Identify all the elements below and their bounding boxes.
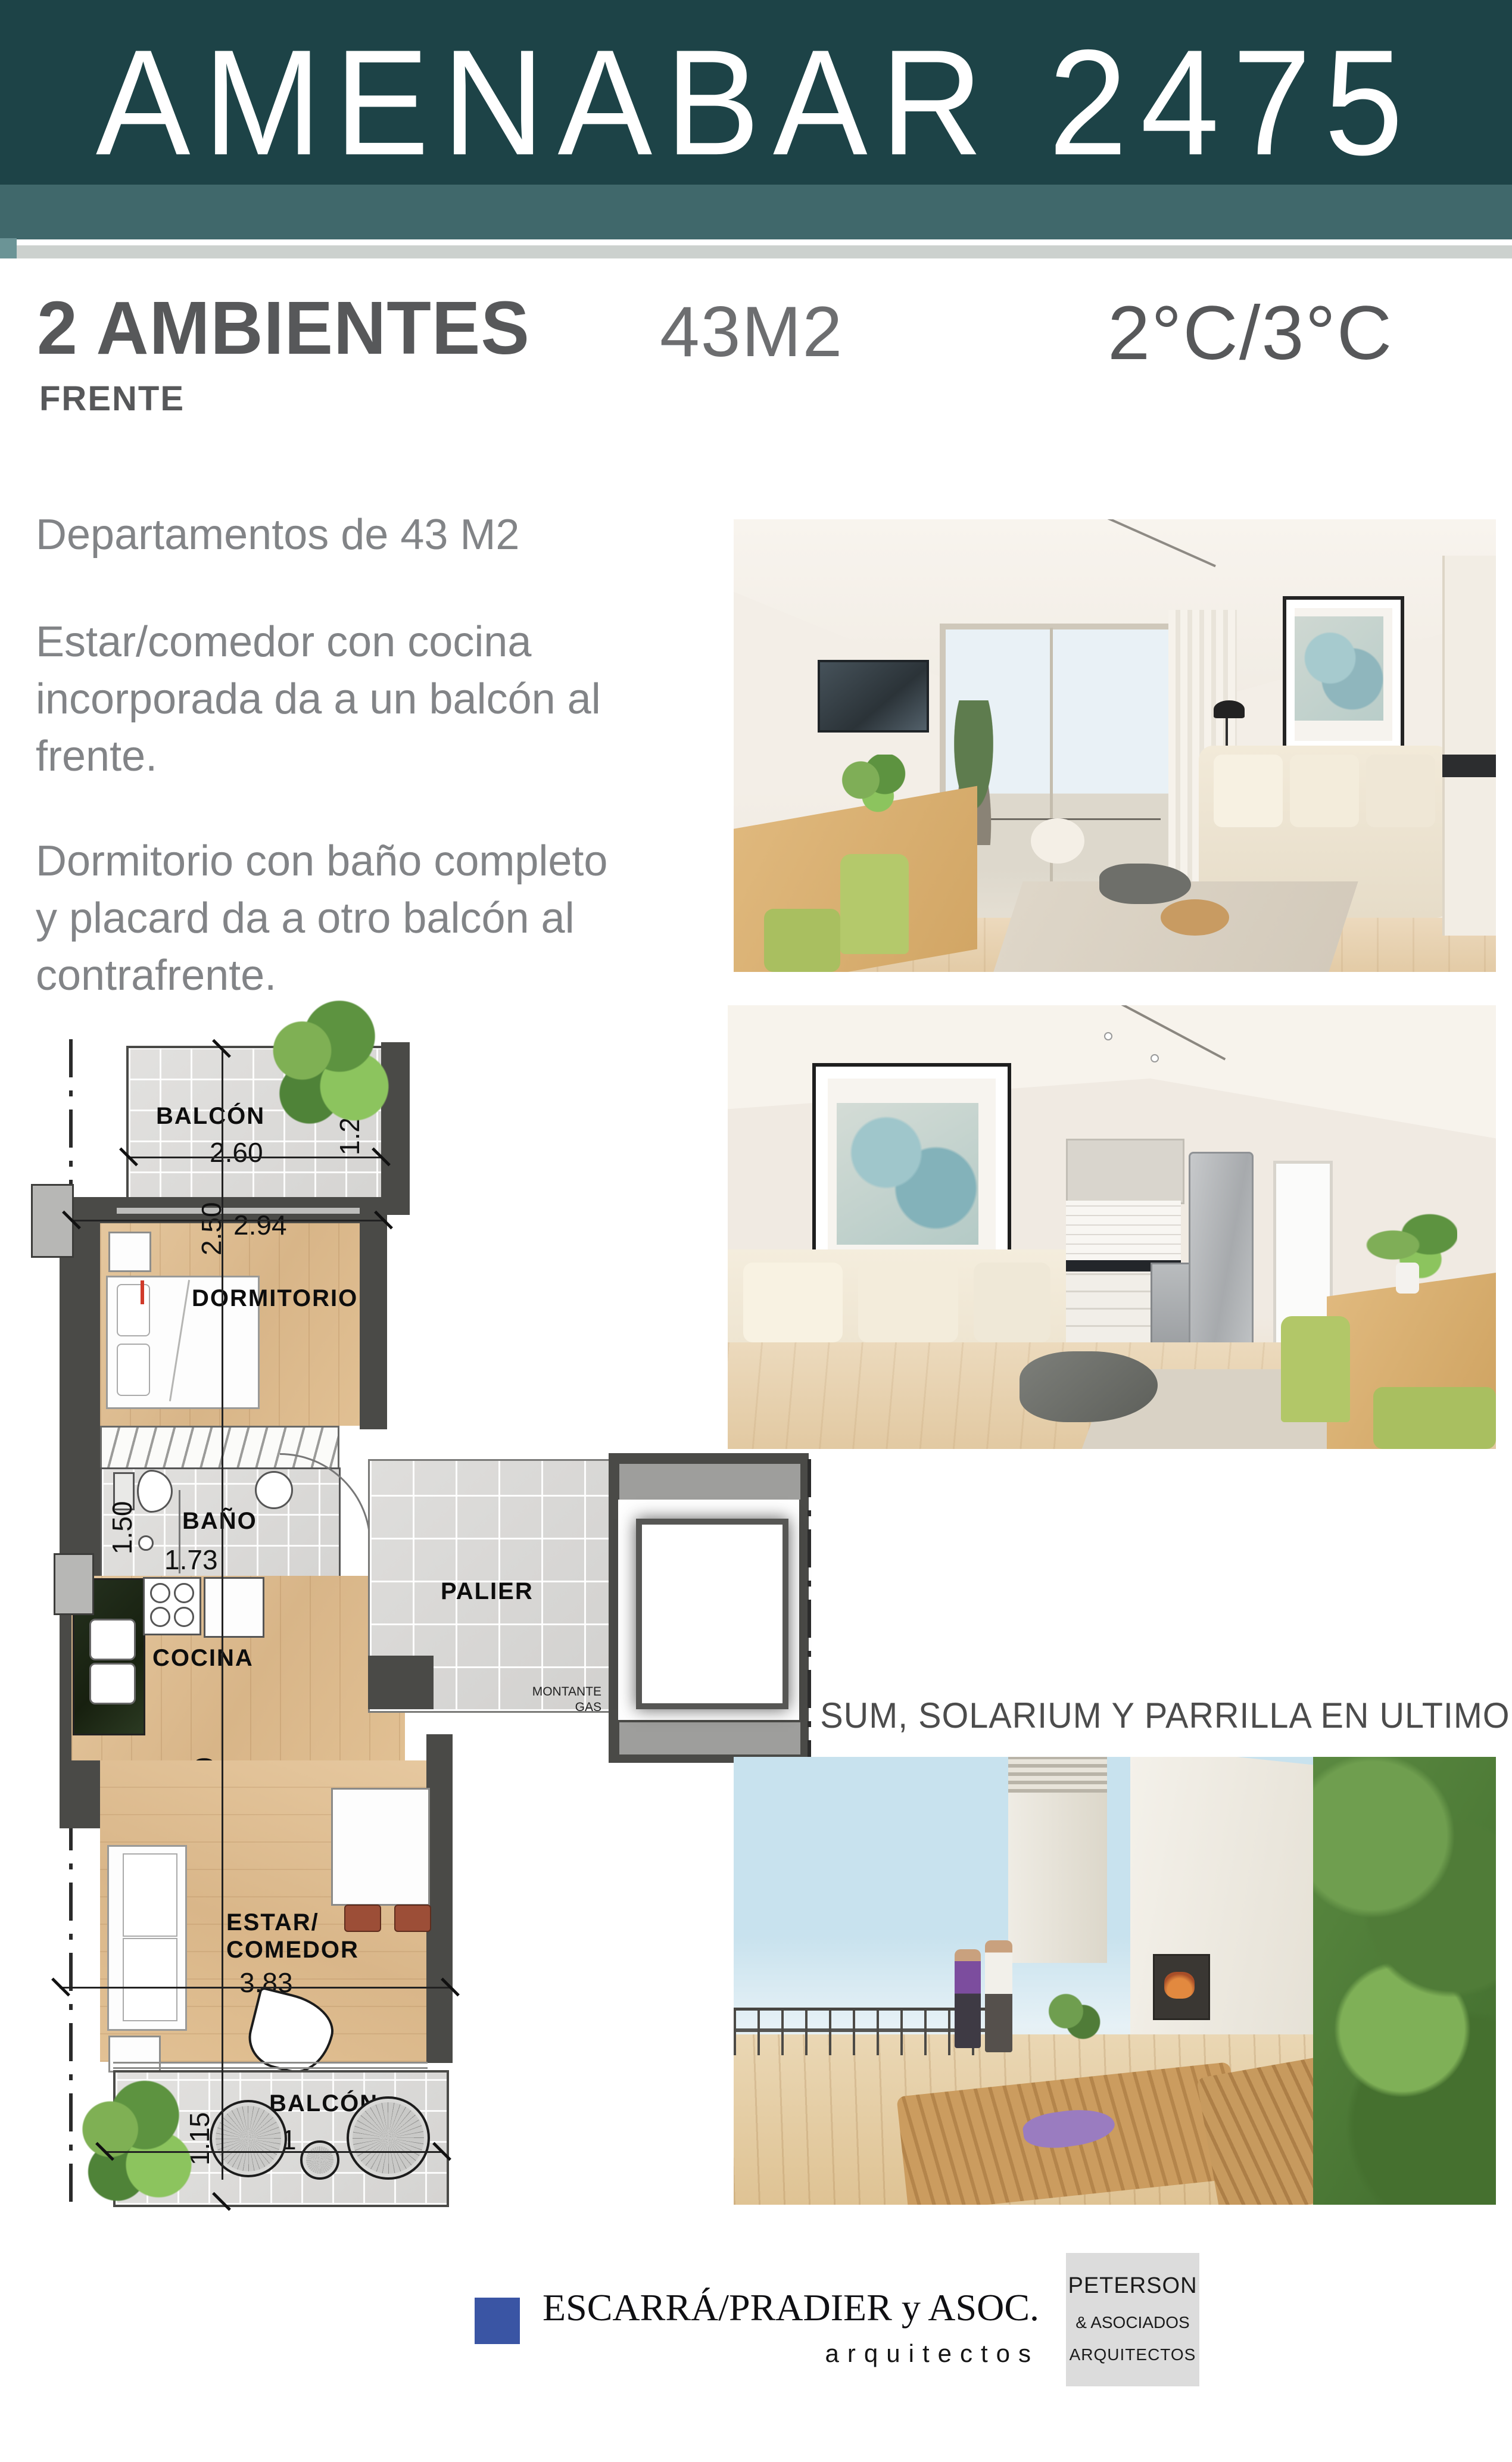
header-strip-gray: [0, 245, 1512, 258]
montante-gas-label: MONTANTE GAS: [524, 1684, 601, 1715]
neighbor-block-top: [31, 1184, 74, 1258]
peterson-line2: & ASOCIADOS: [1066, 2313, 1199, 2332]
description-paragraph-3: Dormitorio con baño completo y placard d…: [36, 833, 738, 1004]
photo2-sofa-cushion-2: [858, 1263, 958, 1342]
listing-type: 2 AMBIENTES: [37, 285, 530, 371]
stove-burner-2: [174, 1583, 194, 1603]
header-edge-chip: [0, 238, 17, 258]
floor-plan: BALCÓN 2.60 1.20 2.50 2.94 DORMITORIO 1.…: [0, 983, 846, 2245]
photo2-upper-cabinets: [1066, 1139, 1185, 1204]
stove-burner-1: [150, 1583, 170, 1603]
montante-line1: MONTANTE: [524, 1684, 601, 1700]
header-band-light: [0, 185, 1512, 239]
bath-depth-dim: 1.50: [106, 1501, 138, 1554]
elevator-boundary-line: [808, 1459, 811, 1763]
peterson-logo-box: PETERSON & ASOCIADOS ARQUITECTOS: [1066, 2253, 1199, 2386]
photo2-fridge-icon: [1189, 1152, 1254, 1351]
photo3-greenery-right: [1313, 1757, 1496, 2205]
peterson-name: PETERSON: [1066, 2273, 1199, 2299]
listing-orientation: FRENTE: [39, 379, 185, 419]
header-gap: [0, 239, 1512, 245]
photo2-bulb-2: [1151, 1054, 1159, 1062]
photo1-side-table-icon: [1161, 899, 1229, 936]
photo1-green-chair-1: [840, 854, 909, 953]
bath-label: BAÑO: [182, 1508, 257, 1535]
escarra-logo-mark: [475, 2298, 520, 2344]
photo1-pouf-icon: [1031, 818, 1084, 864]
balcony-bottom-plant-icon: [62, 2073, 200, 2214]
living-window-line: [113, 2062, 428, 2069]
nightstand-icon: [108, 1232, 151, 1272]
stove-icon: [143, 1577, 201, 1635]
photo3-person-1: [955, 1949, 981, 2047]
sofa-plan-cushion-2: [123, 1938, 177, 2021]
entry-door-arc: [280, 1453, 371, 1544]
escarra-name: ESCARRÁ/PRADIER y ASOC.: [536, 2286, 1039, 2330]
photo3-parrilla-fire: [1164, 1972, 1195, 1999]
photo1-table-plant-icon: [840, 755, 909, 818]
shower-drain-icon: [138, 1535, 154, 1551]
photo3-railing: [734, 2008, 993, 2055]
bed-pillow-2: [117, 1344, 150, 1396]
photo2-sofa-cushion-3: [974, 1263, 1050, 1342]
dim-line-balcony-top: [128, 1157, 383, 1158]
living-label-line2: COMEDOR: [226, 1937, 359, 1964]
living-room-photo: [734, 519, 1496, 972]
kitchen-sink-2: [89, 1663, 136, 1704]
montante-line2: GAS: [524, 1700, 601, 1715]
stove-burner-4: [174, 1607, 194, 1627]
dormitorio-right-wall: [360, 1197, 387, 1429]
bath-width-dim: 1.73: [164, 1544, 218, 1576]
living-right-wall: [426, 1734, 453, 2063]
balcony-plant-icon: [250, 993, 399, 1136]
dim-line-dormitorio: [71, 1220, 386, 1221]
kitchen-sink-1: [89, 1619, 136, 1660]
palier-notch-wall: [368, 1656, 434, 1709]
dining-chair-plan-1: [344, 1905, 381, 1932]
photo3-planter-left: [1039, 1990, 1107, 2043]
balcony-top-label: BALCÓN: [156, 1103, 265, 1130]
escarra-subtitle: arquitectos: [536, 2339, 1039, 2368]
dim-line-vertical: [222, 1048, 223, 2180]
fridge-icon: [204, 1577, 264, 1638]
palier-label: PALIER: [441, 1578, 534, 1605]
photo3-chimney-cap: [1008, 1757, 1107, 1793]
photo1-window-mullion: [1050, 628, 1053, 913]
listing-area: 43M2: [660, 291, 843, 373]
photo2-green-chair-1: [1281, 1316, 1350, 1423]
dim-line-living: [60, 1987, 453, 1989]
photo2-subway-tile: [1066, 1201, 1181, 1263]
photo1-counter-dark: [1442, 755, 1496, 777]
dormitorio-label: DORMITORIO: [192, 1285, 358, 1312]
photo1-coffee-table-icon: [1099, 864, 1191, 904]
living-kitchen-photo: [728, 1005, 1496, 1449]
balcony-top-width-dim: 2.60: [210, 1136, 263, 1168]
photo2-lower-cabinets: [1066, 1271, 1158, 1342]
photo2-vase-icon: [1396, 1263, 1419, 1294]
photo1-sofa-cushion-1: [1214, 755, 1282, 827]
photo2-sofa-cushion-1: [743, 1263, 843, 1342]
wicker-chair-large-2: [347, 2096, 430, 2180]
amenities-caption: SUM, SOLARIUM Y PARRILLA EN ULTIMO PISO: [820, 1695, 1496, 1736]
photo1-green-chair-2: [764, 909, 840, 972]
photo1-sofa-cushion-2: [1290, 755, 1358, 827]
peterson-line3: ARQUITECTOS: [1066, 2345, 1199, 2364]
photo1-kitchen-cabinets: [1442, 556, 1496, 936]
neighbor-block-mid: [54, 1553, 94, 1615]
page-title: AMENABAR 2475: [0, 17, 1512, 195]
photo2-bulb-1: [1104, 1032, 1112, 1040]
photo2-artwork-print: [837, 1103, 978, 1245]
photo1-tv-icon: [818, 660, 929, 733]
description-paragraph-2: Estar/comedor con cocina incorporada da …: [36, 613, 738, 785]
dining-chair-plan-2: [394, 1905, 431, 1932]
dim-line-balcony-bottom: [104, 2151, 444, 2153]
living-label-line1: ESTAR/: [226, 1909, 319, 1936]
stove-burner-3: [150, 1607, 170, 1627]
elevator-cap-bottom: [618, 1721, 802, 1756]
sofa-plan-cushion-1: [123, 1853, 177, 1937]
photo1-lamp-shade: [1214, 700, 1244, 718]
terrace-photo: [734, 1757, 1496, 2205]
dormitorio-width-dim: 2.94: [233, 1209, 287, 1241]
photo1-artwork-print: [1295, 616, 1383, 721]
flyer-page: AMENABAR 2475 2 AMBIENTES 43M2 2°C/3°C F…: [0, 0, 1512, 2462]
kitchen-label: COCINA: [152, 1645, 254, 1672]
listing-units: 2°C/3°C: [1108, 289, 1393, 377]
elevator-cap-top: [618, 1463, 802, 1501]
photo2-green-chair-2: [1373, 1387, 1496, 1449]
description-paragraph-1: Departamentos de 43 M2: [36, 506, 727, 563]
photo3-person-2: [985, 1940, 1012, 2052]
wicker-table-small: [300, 2140, 339, 2180]
bed-accent-mark: [141, 1280, 144, 1304]
dining-table-plan-icon: [331, 1788, 430, 1906]
bed-pillow-1: [117, 1284, 150, 1336]
photo2-stove-icon: [1151, 1263, 1193, 1346]
photo1-sofa-cushion-3: [1366, 755, 1435, 827]
elevator-cab-icon: [636, 1519, 788, 1709]
